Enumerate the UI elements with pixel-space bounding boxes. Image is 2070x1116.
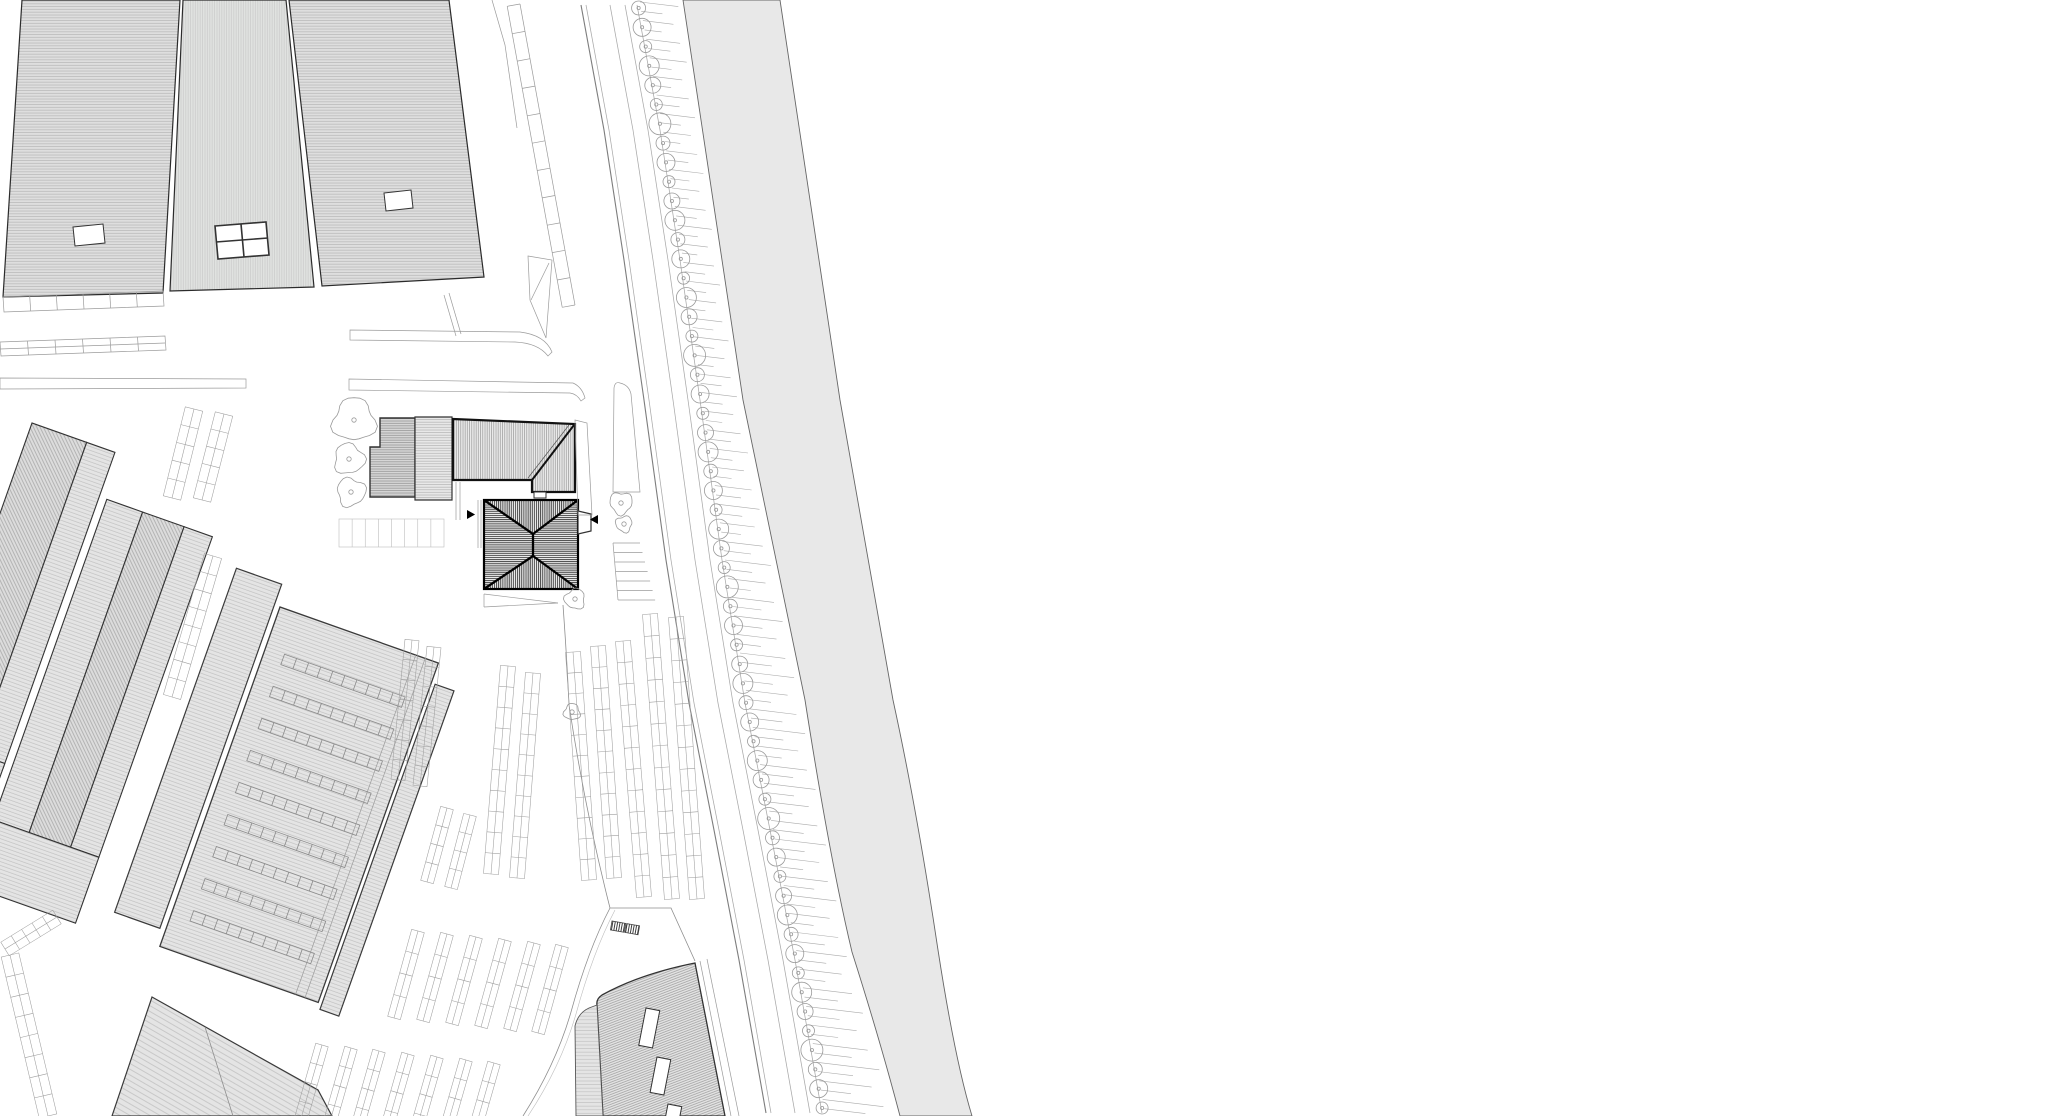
- parking-stall-strip: [163, 407, 202, 500]
- parking-stall-strip: [1, 910, 61, 956]
- slope-tick: [671, 179, 690, 181]
- yard-strip: [0, 378, 246, 389]
- slope-tick: [811, 1034, 838, 1037]
- slope-tick: [728, 579, 766, 584]
- slope-tick: [646, 39, 680, 43]
- site-tree: [615, 516, 632, 534]
- slope-tick: [703, 402, 722, 404]
- crosswalk: [610, 921, 639, 935]
- slope-tick: [798, 960, 826, 963]
- slope-tick: [739, 644, 761, 647]
- slope-tick: [742, 662, 772, 666]
- slope-tick: [678, 225, 712, 229]
- slope-tick: [771, 820, 817, 826]
- site-plan-drawing: [0, 0, 2070, 1116]
- site-plan-canvas: [0, 0, 2070, 1116]
- site-tree: [335, 443, 367, 474]
- slope-tick: [666, 151, 697, 155]
- parking-stall-strip: [380, 1052, 414, 1116]
- ladder-rung: [527, 114, 540, 116]
- traffic-island-diagonal: [531, 263, 549, 300]
- slope-tick: [679, 235, 698, 237]
- slope-tick: [706, 421, 722, 423]
- courtyard-parking-grid: [339, 519, 444, 547]
- slope-tick: [784, 886, 815, 890]
- canal-band: [683, 0, 972, 1116]
- parking-stall-strip: [351, 1049, 385, 1116]
- avenue-tree: [747, 751, 767, 771]
- parking-stall-strip: [388, 929, 425, 1019]
- slope-tick: [794, 941, 824, 945]
- site-tree: [610, 493, 632, 517]
- south-hall-roof: [112, 997, 332, 1116]
- kerb-line: [492, 0, 517, 128]
- slope-tick: [714, 476, 732, 478]
- east-walkway: [575, 420, 592, 515]
- slope-tick: [758, 755, 781, 758]
- slope-tick: [818, 1072, 853, 1076]
- slope-tick: [687, 290, 706, 292]
- ladder-rung: [517, 59, 530, 61]
- slope-tick: [814, 1053, 851, 1058]
- slope-tick: [725, 560, 771, 566]
- slope-tick: [808, 1016, 840, 1020]
- warehouse-2-skylight-grid: [215, 222, 269, 259]
- parcel-boundary: [563, 605, 610, 908]
- avenue-tree: [663, 176, 675, 188]
- slope-tick: [710, 448, 748, 453]
- slope-tick: [686, 281, 720, 285]
- slope-tick: [806, 1006, 863, 1013]
- slope-tick: [655, 86, 671, 88]
- slope-tick: [665, 142, 681, 144]
- loading-dock-strips: [0, 291, 166, 356]
- traffic-island: [528, 256, 552, 338]
- slope-tick: [650, 58, 687, 62]
- west-wing-roof: [370, 418, 415, 497]
- slope-tick: [676, 216, 697, 219]
- section-arrow: [467, 510, 475, 519]
- access-line: [444, 295, 456, 336]
- parking-stall-strip: [532, 944, 569, 1034]
- slope-tick: [791, 923, 814, 926]
- parking-stall-strip: [669, 616, 705, 899]
- slope-tick: [707, 430, 740, 434]
- slope-tick: [805, 997, 838, 1001]
- south-ramp: [484, 594, 558, 607]
- warehouse-1-roof: [3, 0, 180, 297]
- north-wing-tab: [534, 492, 546, 498]
- slope-tick: [682, 253, 697, 255]
- slope-tick: [640, 2, 678, 7]
- parking-stall-strip: [1, 953, 57, 1116]
- sidewalk-strip-north: [350, 330, 552, 356]
- slope-tick: [793, 932, 839, 938]
- slope-tick: [824, 1109, 865, 1114]
- slope-tick: [658, 104, 679, 107]
- slope-tick: [697, 355, 725, 358]
- ladder-rung: [512, 31, 525, 33]
- divided-strip: [0, 336, 166, 356]
- slope-tick: [645, 30, 662, 32]
- site-tree: [563, 704, 581, 720]
- middle-wing-roof: [415, 417, 452, 500]
- roadside-stall-ladder: [507, 4, 575, 307]
- parking-stall-strip: [475, 938, 512, 1028]
- access-line: [449, 293, 461, 334]
- slope-tick: [769, 811, 792, 814]
- slope-tick: [747, 700, 771, 703]
- warehouse-3-skylight: [384, 190, 413, 211]
- slope-tick: [736, 625, 763, 628]
- slope-tick: [643, 21, 674, 25]
- parking-stall-strip: [417, 932, 454, 1022]
- parking-stall-strip: [409, 1055, 443, 1116]
- warehouse-3-roof: [289, 0, 484, 286]
- plaza-north-edge: [610, 908, 695, 961]
- slope-tick: [740, 653, 785, 658]
- ladder-rung: [557, 278, 570, 280]
- avenue-tree: [697, 407, 709, 419]
- slope-tick: [673, 197, 688, 199]
- slope-tick: [681, 244, 708, 247]
- parking-stall-strip: [484, 665, 516, 874]
- slope-tick: [721, 532, 741, 534]
- slope-tick: [746, 690, 788, 695]
- slope-tick: [780, 867, 803, 870]
- site-tree: [563, 588, 584, 609]
- parking-stall-strip: [504, 941, 541, 1031]
- slope-tick: [789, 913, 830, 918]
- slope-tick: [708, 439, 731, 442]
- avenue-tree: [678, 272, 690, 284]
- slope-tick: [657, 95, 689, 99]
- slope-tick: [757, 746, 799, 751]
- slope-tick: [730, 588, 751, 591]
- slope-tick: [810, 1025, 857, 1031]
- ladder-rung: [562, 305, 575, 307]
- site-tree: [337, 477, 366, 508]
- slope-tick: [694, 337, 729, 341]
- avenue-tree: [710, 504, 722, 516]
- slope-tick: [653, 76, 682, 80]
- parking-stall-strip: [616, 640, 652, 897]
- slope-tick: [689, 300, 716, 303]
- ladder-rung: [507, 4, 520, 6]
- slope-tick: [786, 895, 837, 901]
- parking-stall-strip: [591, 646, 622, 879]
- slope-tick: [737, 634, 777, 639]
- slope-tick: [753, 727, 805, 733]
- slope-tick: [727, 569, 753, 572]
- slope-tick: [764, 783, 816, 789]
- slope-tick: [651, 67, 671, 69]
- slope-tick: [719, 514, 743, 517]
- slope-tick: [749, 709, 796, 715]
- stepped-terrace: [613, 543, 655, 600]
- slope-tick: [720, 523, 755, 527]
- slope-tick: [800, 969, 842, 974]
- north-wing-roof: [453, 419, 575, 492]
- avenue-tree: [686, 330, 698, 342]
- avenue-tree: [758, 808, 780, 830]
- parking-stall-strip: [446, 935, 483, 1025]
- gable-building: [575, 959, 739, 1116]
- slope-tick: [693, 328, 714, 331]
- main-hall-hip-roof: [484, 500, 578, 589]
- parking-stall-strip: [323, 1046, 357, 1116]
- sidewalk-strip-south: [349, 379, 585, 401]
- slope-tick: [717, 504, 759, 509]
- slope-tick: [816, 1062, 879, 1070]
- road-median-wedge: [613, 383, 640, 492]
- site-tree: [331, 398, 378, 440]
- parking-stall-strip: [466, 1061, 500, 1116]
- slope-tick: [668, 160, 689, 163]
- slope-tick: [744, 681, 772, 684]
- slope-tick: [767, 802, 808, 807]
- slope-tick: [751, 718, 782, 722]
- slope-tick: [760, 765, 807, 771]
- ladder-rung: [522, 86, 535, 88]
- parking-stall-strip: [566, 652, 597, 881]
- slope-tick: [695, 346, 714, 348]
- parking-stall-strip: [510, 672, 541, 878]
- slope-tick: [777, 848, 805, 851]
- warehouse-1-skylight: [73, 224, 105, 246]
- slope-tick: [715, 486, 752, 490]
- ladder-rung: [537, 168, 550, 170]
- slope-tick: [702, 393, 737, 397]
- ladder-rung: [532, 141, 545, 143]
- ladder-rung: [552, 250, 565, 252]
- avenue-tree: [777, 905, 797, 925]
- ladder-rung: [542, 196, 555, 198]
- entrance-porch: [578, 511, 591, 534]
- slope-tick: [821, 1090, 851, 1094]
- slope-tick: [823, 1099, 884, 1106]
- slope-tick: [801, 979, 825, 982]
- slope-tick: [672, 188, 699, 191]
- slope-tick: [675, 207, 706, 211]
- slope-tick: [775, 839, 826, 845]
- slope-tick: [803, 988, 852, 994]
- slope-tick: [669, 169, 703, 173]
- slope-tick: [782, 876, 828, 882]
- canal: [683, 0, 972, 1116]
- slope-tick: [731, 597, 774, 602]
- slope-tick: [663, 132, 691, 135]
- ladder-rung: [547, 223, 560, 225]
- parking-stall-strip: [438, 1058, 472, 1116]
